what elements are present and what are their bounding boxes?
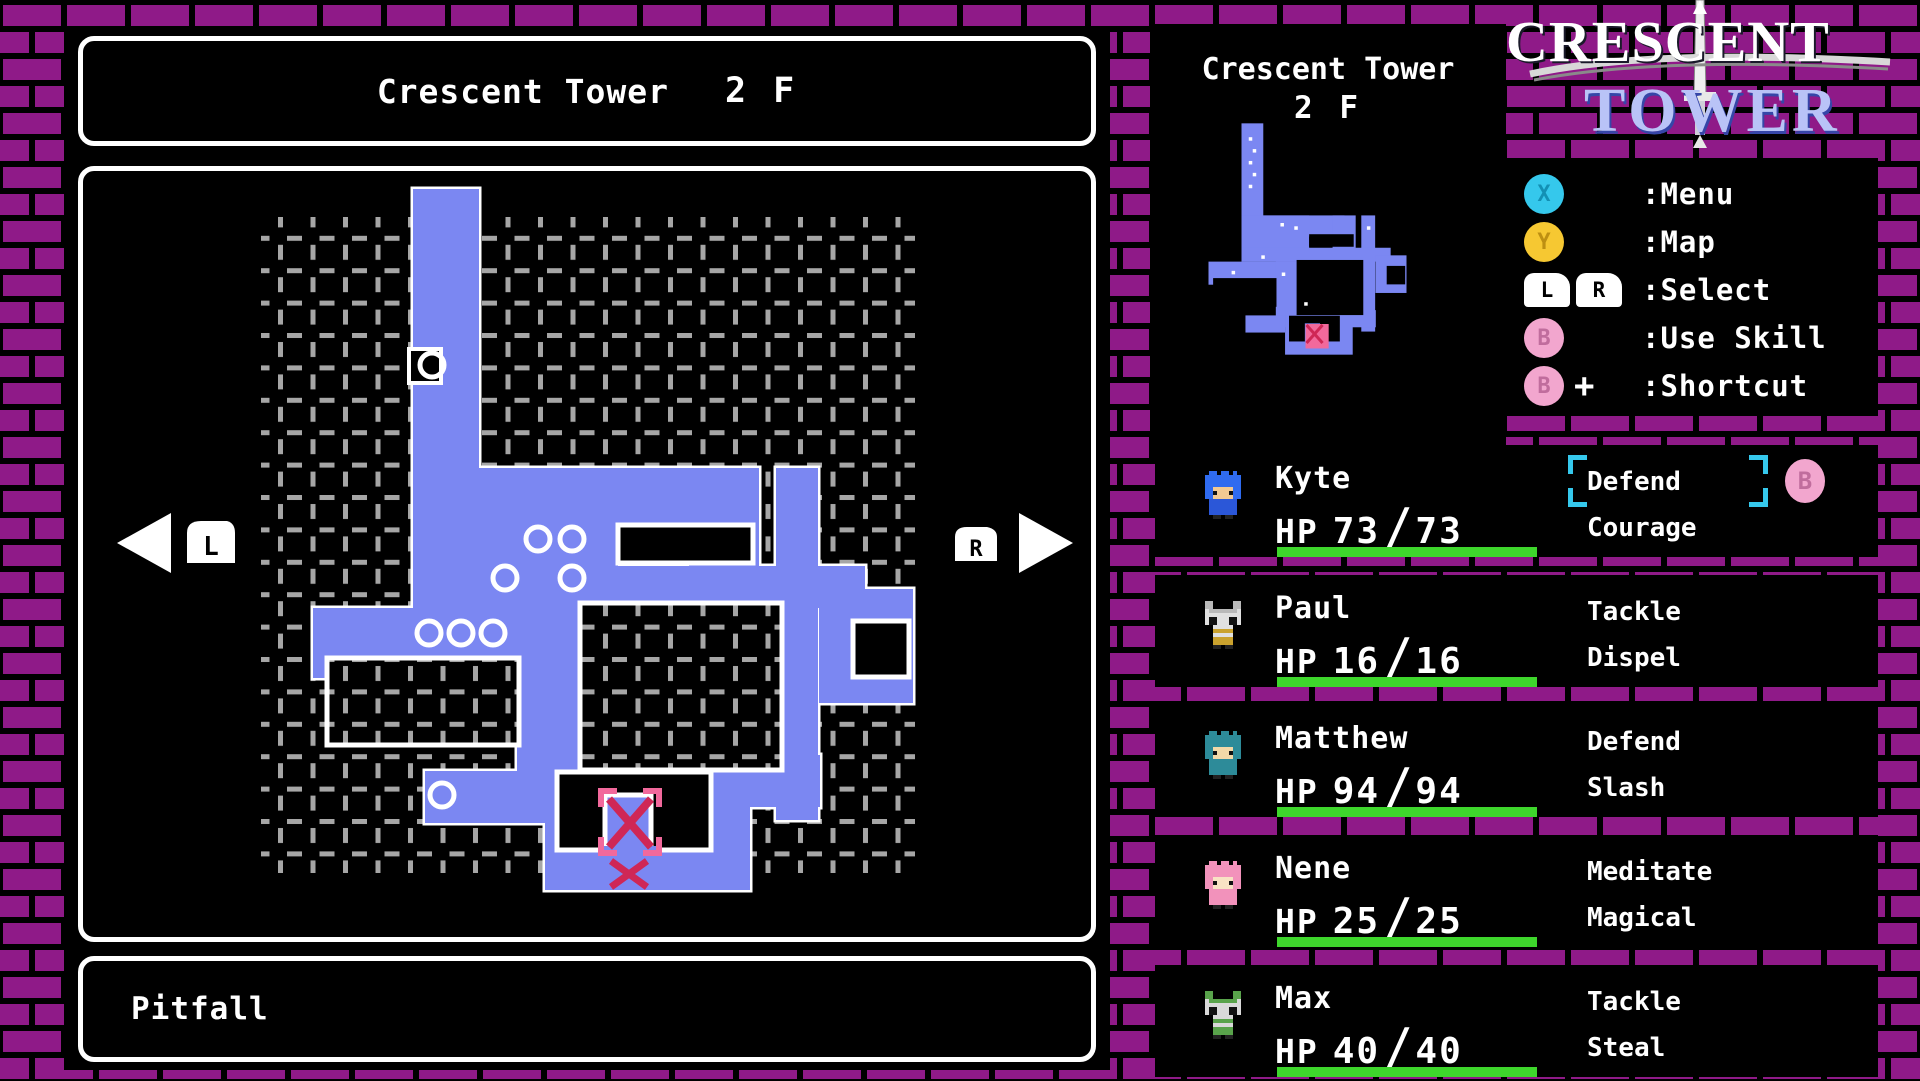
l-shoulder-icon: L [1524,273,1570,307]
skill-select-brackets [1568,455,1768,507]
r-shoulder-icon: R [1576,273,1622,307]
minimap-image [1150,24,1506,454]
hp-current: 73 [1333,511,1380,552]
hp-current: 94 [1333,771,1380,812]
character-sprite [1201,731,1245,787]
character-name: Matthew [1275,721,1408,756]
legend-label: :Select [1642,273,1771,307]
hp-current: 25 [1333,901,1380,942]
legend-label: :Use Skill [1642,321,1827,355]
legend-row: B+:Shortcut [1524,362,1878,410]
legend-buttons: Y [1524,222,1642,262]
location-title: Crescent Tower [377,72,669,111]
party-member-row[interactable]: KyteHP73/73DefendCourageB [1155,445,1878,557]
character-name: Nene [1275,851,1351,886]
y-button-icon: Y [1524,222,1564,262]
hp-max: 16 [1415,641,1462,682]
minimap-panel: Crescent Tower 2 F [1150,24,1506,454]
hp-label: HP [1275,902,1319,941]
hp-max: 94 [1415,771,1462,812]
hp-bar [1277,807,1537,817]
dungeon-map: LR [83,171,1091,937]
hp-bar [1277,937,1537,947]
skill-primary: Tackle [1587,597,1681,627]
skill-secondary: Dispel [1587,643,1681,673]
legend-row: LR:Select [1524,266,1878,314]
legend-row: Y:Map [1524,218,1878,266]
b-button-icon: B [1524,318,1564,358]
hp-bar [1277,677,1537,687]
b-button-icon: B [1524,366,1564,406]
party-member-row[interactable]: MaxHP40/40TackleSteal [1155,965,1878,1077]
floor-label: 2 F [725,71,797,111]
status-bar: Pitfall [78,956,1096,1062]
hp-max: 40 [1415,1031,1462,1072]
hp-label: HP [1275,772,1319,811]
skill-secondary: Slash [1587,773,1665,803]
legend-label: :Menu [1642,177,1734,211]
b-button-badge-icon[interactable]: B [1785,459,1825,503]
logo-line2: TOWER [1584,76,1841,147]
x-button-icon: X [1524,174,1564,214]
hp-current: 40 [1333,1031,1380,1072]
controls-legend: X:MenuY:MapLR:SelectB:Use SkillB+:Shortc… [1506,158,1878,416]
page-right-arrow-icon[interactable] [1019,513,1073,573]
hp-max: 73 [1415,511,1462,552]
hp-label: HP [1275,512,1319,551]
party-member-row[interactable]: NeneHP25/25MeditateMagical [1155,835,1878,947]
character-sprite [1201,601,1245,657]
skill-secondary: Magical [1587,903,1697,933]
hp-max: 25 [1415,901,1462,942]
legend-label: :Map [1642,225,1716,259]
hp-label: HP [1275,642,1319,681]
hp-bar [1277,1067,1537,1077]
character-name: Paul [1275,591,1351,626]
page-left-arrow-icon[interactable] [117,513,171,573]
character-name: Kyte [1275,461,1351,496]
r-shoulder-button[interactable]: R [955,527,997,562]
tile-status-text: Pitfall [131,991,269,1027]
svg-text:R: R [969,537,983,562]
map-room [580,603,782,770]
logo-line1: CRESCENT [1506,8,1920,75]
character-name: Max [1275,981,1332,1016]
hp-bar [1277,547,1537,557]
map-room [618,525,753,563]
skill-primary: Meditate [1587,857,1712,887]
l-shoulder-button[interactable]: L [187,521,235,563]
map-panel: LR [78,166,1096,942]
game-logo: CRESCENT TOWER [1500,0,1920,160]
skill-primary: Defend [1587,727,1681,757]
plus-icon: + [1574,366,1594,406]
character-sprite [1201,471,1245,527]
hp-current: 16 [1333,641,1380,682]
legend-row: X:Menu [1524,170,1878,218]
legend-buttons: B [1524,318,1642,358]
party-member-row[interactable]: PaulHP16/16TackleDispel [1155,575,1878,687]
skill-secondary: Steal [1587,1033,1665,1063]
legend-buttons: LR [1524,273,1642,307]
character-sprite [1201,991,1245,1047]
legend-buttons: B+ [1524,366,1642,406]
map-room [853,621,909,677]
legend-buttons: X [1524,174,1642,214]
legend-row: B:Use Skill [1524,314,1878,362]
skill-secondary: Courage [1587,513,1697,543]
map-room [327,658,519,745]
legend-label: :Shortcut [1642,369,1808,403]
hp-label: HP [1275,1032,1319,1071]
character-sprite [1201,861,1245,917]
party-member-row[interactable]: MatthewHP94/94DefendSlash [1155,705,1878,817]
location-banner: Crescent Tower 2 F [78,36,1096,146]
skill-primary: Tackle [1587,987,1681,1017]
svg-text:L: L [203,532,219,562]
